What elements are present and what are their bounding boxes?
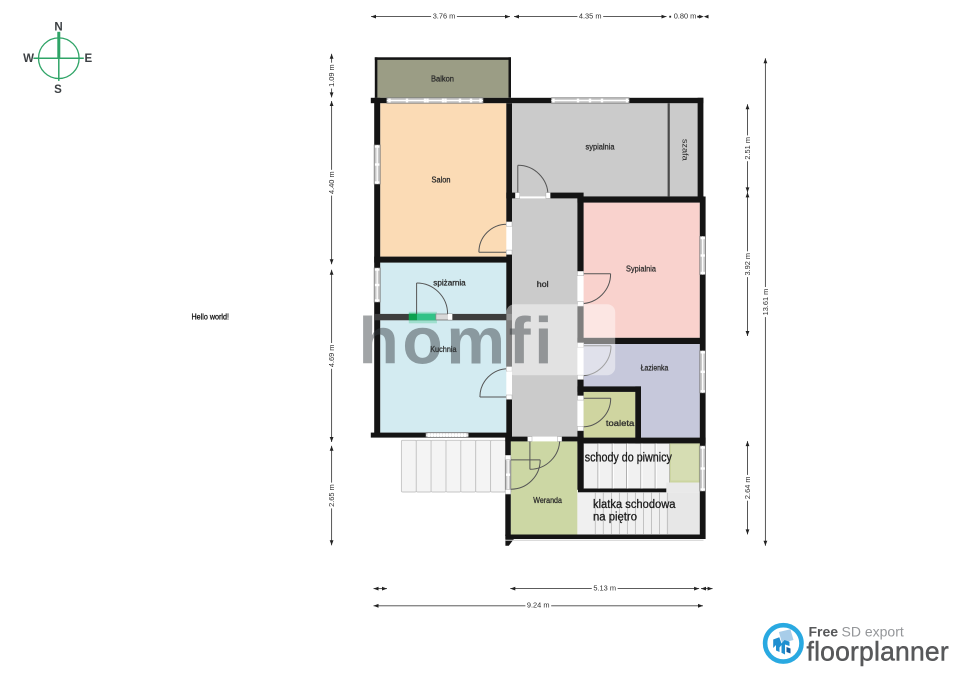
svg-text:homfi: homfi	[359, 304, 557, 378]
svg-text:Hello world!: Hello world!	[192, 312, 230, 322]
svg-text:4.69 m: 4.69 m	[327, 345, 336, 368]
svg-text:floorplanner: floorplanner	[807, 636, 949, 666]
svg-text:N: N	[54, 21, 62, 33]
svg-text:2.64 m: 2.64 m	[743, 476, 752, 499]
svg-text:Łazienka: Łazienka	[641, 363, 669, 373]
svg-text:Sypialnia: Sypialnia	[626, 263, 656, 273]
svg-text:3.76 m: 3.76 m	[433, 11, 456, 20]
svg-text:E: E	[84, 53, 92, 65]
svg-text:3.92 m: 3.92 m	[743, 253, 752, 276]
svg-text:2.65 m: 2.65 m	[327, 484, 336, 507]
svg-text:sypialnia: sypialnia	[586, 141, 615, 151]
svg-text:spiżarnia: spiżarnia	[433, 278, 466, 288]
svg-text:szafa: szafa	[680, 139, 690, 161]
svg-text:na piętro: na piętro	[593, 509, 637, 523]
svg-text:Salon: Salon	[432, 175, 451, 185]
svg-text:1.09 m: 1.09 m	[327, 64, 336, 87]
svg-text:0.80 m: 0.80 m	[674, 12, 697, 21]
svg-text:S: S	[54, 84, 62, 96]
svg-text:Balkon: Balkon	[431, 74, 454, 84]
svg-text:13.61 m: 13.61 m	[761, 289, 770, 316]
svg-text:2.51 m: 2.51 m	[743, 137, 752, 160]
svg-text:hol: hol	[537, 279, 549, 289]
svg-text:5.13 m: 5.13 m	[593, 583, 616, 592]
svg-text:Weranda: Weranda	[533, 495, 562, 505]
svg-text:4.35 m: 4.35 m	[579, 11, 602, 20]
svg-text:toaleta: toaleta	[606, 418, 635, 428]
svg-text:W: W	[23, 53, 34, 65]
svg-text:9.24 m: 9.24 m	[527, 601, 550, 610]
svg-text:schody do piwnicy: schody do piwnicy	[585, 451, 673, 465]
svg-text:4.40 m: 4.40 m	[327, 171, 336, 194]
